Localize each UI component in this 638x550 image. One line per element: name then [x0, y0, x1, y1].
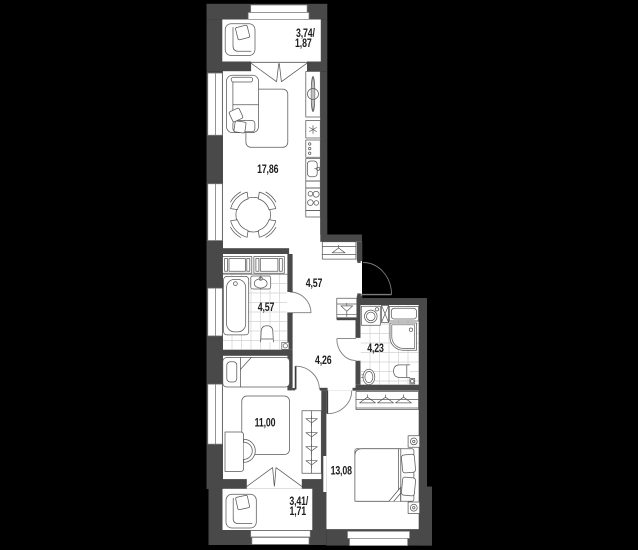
- svg-text:1,87: 1,87: [295, 37, 312, 51]
- svg-text:13,08: 13,08: [331, 464, 352, 478]
- svg-text:11,00: 11,00: [255, 416, 276, 430]
- svg-text:4,57: 4,57: [306, 277, 323, 291]
- svg-text:4,26: 4,26: [315, 354, 332, 368]
- svg-text:17,86: 17,86: [257, 162, 278, 176]
- svg-text:4,57: 4,57: [258, 301, 275, 315]
- svg-text:4,23: 4,23: [367, 342, 384, 356]
- svg-text:1,71: 1,71: [289, 505, 306, 519]
